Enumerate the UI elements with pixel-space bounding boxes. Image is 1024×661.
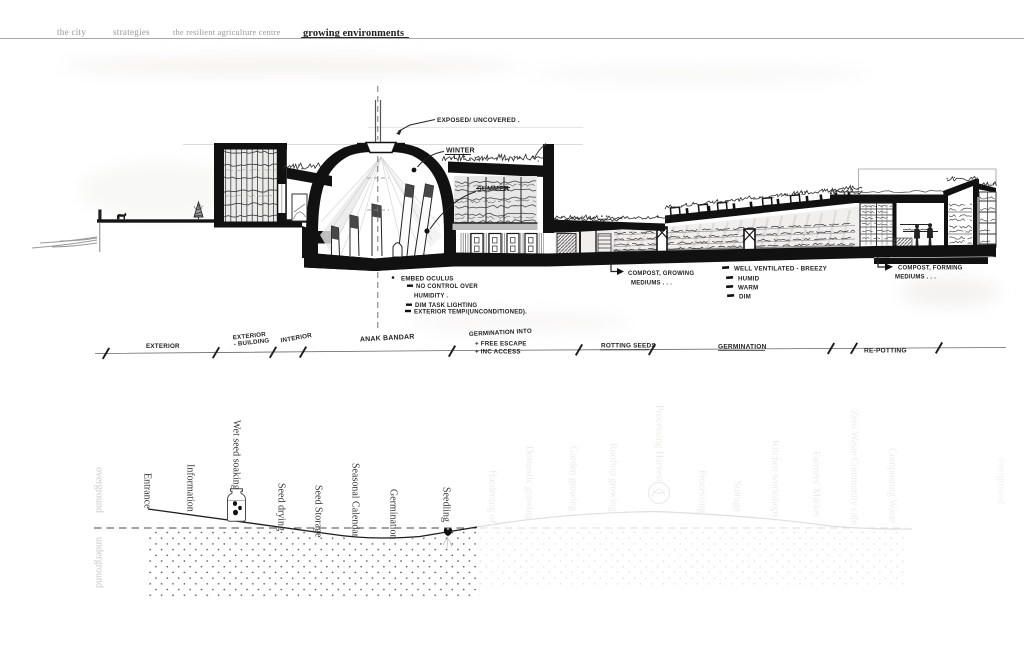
svg-text:+ INC ACCESS: + INC ACCESS: [475, 349, 521, 356]
svg-text:SUMMER: SUMMER: [477, 186, 509, 193]
svg-text:Rooftop growing: Rooftop growing: [608, 443, 619, 512]
svg-text:Hardening off: Hardening off: [487, 470, 498, 527]
svg-text:EXTERIOR: EXTERIOR: [146, 343, 180, 350]
svg-text:WELL VENTILATED - BREEZY: WELL VENTILATED - BREEZY: [734, 266, 828, 273]
svg-text:DIM TASK LIGHTING: DIM TASK LIGHTING: [415, 303, 477, 309]
svg-text:WARM: WARM: [738, 285, 758, 292]
svg-text:+ FREE ESCAPE: + FREE ESCAPE: [475, 341, 527, 348]
svg-text:Zero Waste Community cafe: Zero Waste Community cafe: [849, 410, 860, 525]
svg-text:Kitchen workshops: Kitchen workshops: [770, 440, 781, 518]
svg-text:ROTTING SEEDS: ROTTING SEEDS: [601, 343, 656, 350]
svg-text:Storage: Storage: [732, 481, 743, 512]
svg-text:COMPOST, FORMING: COMPOST, FORMING: [898, 266, 963, 272]
svg-text:MEDIUMS . . .: MEDIUMS . . .: [631, 281, 672, 287]
svg-text:GERMINATION: GERMINATION: [718, 344, 767, 351]
svg-text:overground: overground: [996, 458, 1007, 504]
svg-text:ANAK BANDAR: ANAK BANDAR: [360, 334, 415, 344]
svg-text:Seed Storage: Seed Storage: [313, 485, 324, 538]
svg-text:Information: Information: [185, 464, 196, 512]
svg-text:Entrance: Entrance: [142, 473, 153, 509]
svg-text:Wet seed soaking: Wet seed soaking: [231, 420, 242, 490]
svg-text:DIM: DIM: [739, 294, 751, 301]
svg-text:EMBED OCULUS: EMBED OCULUS: [401, 276, 454, 283]
svg-text:HUMIDITY .: HUMIDITY .: [414, 294, 448, 300]
svg-text:NO CONTROL OVER: NO CONTROL OVER: [416, 284, 478, 290]
svg-text:underground: underground: [94, 537, 105, 588]
svg-text:HUMID: HUMID: [738, 276, 760, 283]
svg-text:EXTERIOR TEMP/(UNCONDITIONED).: EXTERIOR TEMP/(UNCONDITIONED).: [414, 309, 527, 315]
svg-text:overground: overground: [94, 467, 105, 513]
svg-text:COMPOST, GROWING: COMPOST, GROWING: [628, 271, 694, 277]
svg-text:Domestic growing: Domestic growing: [524, 446, 535, 520]
svg-text:Seed drying: Seed drying: [276, 483, 287, 531]
svg-text:Processing: Processing: [697, 470, 708, 513]
svg-text:MEDIUMS . . .: MEDIUMS . . .: [895, 275, 936, 281]
svg-text:Seedling: Seedling: [441, 487, 452, 522]
svg-text:Farmers' Market: Farmers' Market: [811, 451, 822, 517]
svg-text:Germination: Germination: [388, 489, 399, 540]
svg-text:Seasonal Calendar: Seasonal Calendar: [350, 463, 361, 538]
svg-text:RE-POTTING: RE-POTTING: [864, 348, 907, 355]
svg-text:Composting Waste: Composting Waste: [887, 448, 898, 524]
svg-text:EXPOSED/ UNCOVERED .: EXPOSED/ UNCOVERED .: [437, 117, 520, 124]
svg-text:Garden growing: Garden growing: [568, 446, 579, 511]
svg-text:Processing Harvest: Processing Harvest: [654, 405, 665, 482]
svg-text:WINTER: WINTER: [446, 148, 475, 155]
svg-text:INTERIOR: INTERIOR: [280, 332, 313, 344]
